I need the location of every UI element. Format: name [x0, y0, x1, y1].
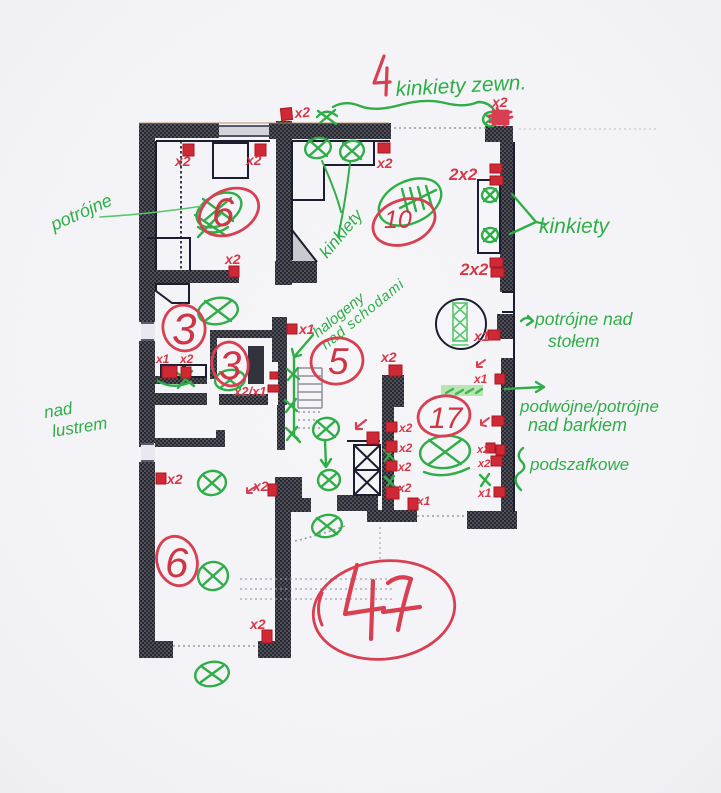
svg-text:x1: x1 [155, 352, 170, 366]
svg-text:x1: x1 [298, 321, 315, 337]
svg-text:stołem: stołem [548, 331, 600, 351]
svg-text:6: 6 [212, 191, 235, 235]
svg-text:17: 17 [429, 402, 464, 435]
svg-text:x2: x2 [380, 349, 397, 365]
svg-text:podwójne/potrójne: podwójne/potrójne [519, 397, 659, 416]
svg-text:5: 5 [328, 341, 349, 382]
svg-text:podszafkowe: podszafkowe [529, 455, 629, 474]
svg-text:x2: x2 [179, 352, 194, 366]
svg-text:x2: x2 [491, 94, 508, 110]
svg-text:kinkiety: kinkiety [539, 215, 611, 238]
svg-text:x2: x2 [477, 458, 490, 470]
svg-text:6: 6 [165, 539, 189, 586]
svg-text:x2: x2 [245, 152, 262, 168]
svg-text:x2: x2 [398, 441, 413, 455]
svg-text:10: 10 [384, 206, 412, 234]
svg-text:x1: x1 [416, 494, 431, 508]
svg-text:x2: x2 [398, 421, 413, 435]
svg-text:2x2: 2x2 [459, 260, 489, 279]
svg-text:2x2: 2x2 [448, 165, 478, 184]
svg-text:3: 3 [219, 344, 241, 388]
svg-text:x2: x2 [376, 155, 393, 171]
svg-text:3: 3 [172, 305, 197, 354]
svg-text:x1: x1 [473, 328, 490, 344]
svg-text:x2: x2 [249, 616, 266, 632]
svg-text:nad barkiem: nad barkiem [528, 415, 627, 435]
svg-text:x2: x2 [397, 481, 412, 495]
svg-text:x2: x2 [174, 153, 191, 169]
svg-text:x2: x2 [224, 251, 241, 267]
svg-text:x2: x2 [293, 104, 311, 121]
svg-text:x2: x2 [476, 444, 489, 456]
svg-text:x2: x2 [166, 471, 183, 487]
svg-text:x1: x1 [477, 486, 492, 500]
svg-text:potrójne nad: potrójne nad [534, 309, 634, 329]
svg-text:x2: x2 [397, 460, 412, 474]
svg-text:x2: x2 [252, 478, 269, 494]
svg-text:x2/x1: x2/x1 [233, 384, 267, 399]
svg-text:x1: x1 [473, 372, 488, 386]
